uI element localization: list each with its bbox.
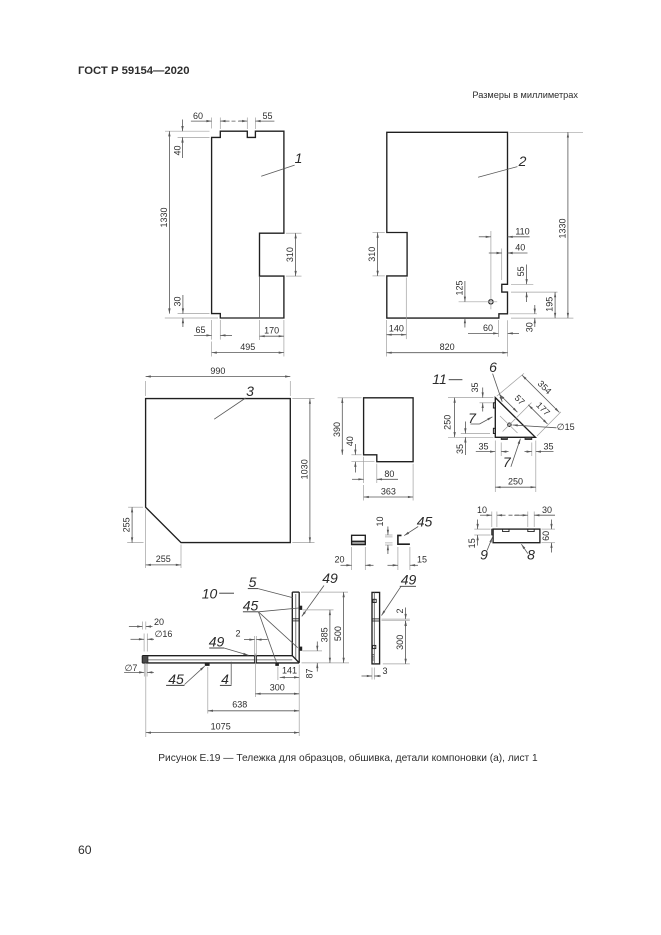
svg-text:125: 125 [454,280,464,295]
svg-text:87: 87 [304,668,314,678]
svg-text:55: 55 [516,266,526,276]
svg-text:35: 35 [470,382,480,392]
svg-text:141: 141 [282,666,297,676]
svg-text:11: 11 [432,371,447,387]
svg-text:10: 10 [477,505,487,515]
svg-text:4: 4 [221,671,229,687]
svg-text:385: 385 [319,627,329,642]
svg-text:250: 250 [443,415,453,430]
svg-text:20: 20 [154,617,164,627]
svg-text:495: 495 [240,342,255,352]
svg-text:1330: 1330 [557,218,567,238]
svg-text:820: 820 [440,342,455,352]
svg-text:1: 1 [295,150,303,166]
svg-text:255: 255 [122,517,132,532]
svg-text:1075: 1075 [211,721,231,731]
svg-text:60: 60 [483,323,493,333]
svg-text:9: 9 [480,547,488,563]
svg-text:1330: 1330 [159,207,169,227]
svg-text:2: 2 [518,153,527,169]
svg-text:170: 170 [264,326,279,336]
svg-text:35: 35 [455,444,465,454]
svg-text:250: 250 [508,477,523,487]
svg-text:55: 55 [262,111,272,121]
svg-text:300: 300 [395,635,405,650]
svg-text:390: 390 [332,422,342,437]
svg-text:60: 60 [541,531,551,541]
svg-text:60: 60 [78,843,92,857]
svg-text:6: 6 [489,359,497,375]
svg-text:363: 363 [381,486,396,496]
svg-text:∅7: ∅7 [125,663,138,673]
svg-text:3: 3 [382,666,387,676]
svg-text:49: 49 [209,634,225,650]
svg-text:110: 110 [515,226,529,236]
svg-text:49: 49 [322,570,338,586]
svg-text:255: 255 [156,554,171,564]
svg-text:15: 15 [417,555,427,565]
svg-text:300: 300 [270,683,285,693]
svg-text:35: 35 [478,441,488,451]
svg-text:30: 30 [173,296,183,306]
svg-text:49: 49 [401,571,417,587]
svg-text:45: 45 [168,671,184,687]
svg-text:310: 310 [367,247,377,262]
svg-text:40: 40 [172,145,182,155]
svg-text:140: 140 [389,324,404,334]
svg-text:7: 7 [503,454,512,470]
svg-text:∅16: ∅16 [155,629,173,639]
svg-text:8: 8 [527,547,535,563]
svg-text:Рисунок Е.19 — Тележка для обр: Рисунок Е.19 — Тележка для образцов, обш… [158,752,538,764]
svg-text:60: 60 [193,111,203,121]
svg-text:45: 45 [417,514,433,530]
svg-text:65: 65 [195,325,205,335]
svg-text:500: 500 [333,626,343,641]
svg-text:15: 15 [467,538,477,548]
svg-text:1030: 1030 [299,459,309,479]
svg-text:5: 5 [249,574,257,590]
svg-text:2: 2 [235,629,240,639]
svg-text:45: 45 [243,598,259,614]
svg-text:3: 3 [246,383,254,399]
svg-text:40: 40 [345,436,355,446]
svg-text:35: 35 [543,441,553,451]
svg-text:80: 80 [384,469,394,479]
svg-text:990: 990 [210,366,225,376]
svg-text:Размеры в миллиметрах: Размеры в миллиметрах [472,90,578,100]
svg-text:30: 30 [524,322,534,332]
svg-text:∅15: ∅15 [557,422,575,432]
svg-text:20: 20 [334,555,344,565]
svg-text:ГОСТ Р 59154—2020: ГОСТ Р 59154—2020 [78,65,189,77]
svg-text:638: 638 [232,700,247,710]
svg-text:310: 310 [285,247,295,262]
svg-text:10: 10 [375,516,385,526]
svg-text:30: 30 [542,505,552,515]
svg-text:10: 10 [202,586,218,602]
svg-text:195: 195 [545,297,555,312]
svg-text:2: 2 [395,608,405,613]
svg-text:40: 40 [515,242,525,252]
